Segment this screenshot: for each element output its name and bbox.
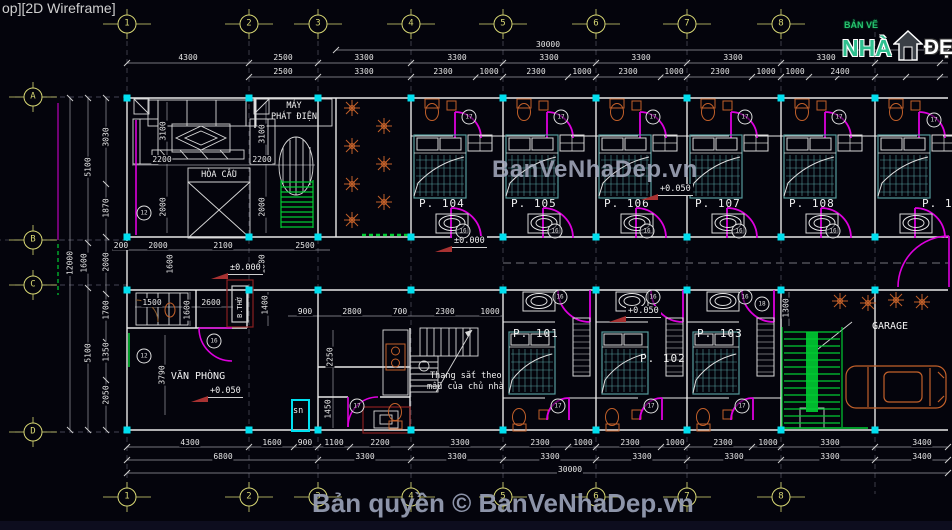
dim-label: 1100	[323, 438, 344, 447]
door-tag: 16	[646, 290, 661, 305]
door-tag: 16	[553, 290, 568, 305]
dim-label: 2400	[829, 67, 850, 76]
door-tag: 17	[646, 110, 661, 125]
dim-label: 2300	[434, 307, 455, 316]
dim-label: 4300	[177, 53, 198, 62]
dim-label: 900	[297, 307, 313, 316]
dim-label: 2500	[272, 67, 293, 76]
dim-label: 900	[297, 438, 313, 447]
dim-label: 2300	[525, 67, 546, 76]
room-label: P. 108	[789, 197, 835, 210]
dim-label: 1350	[102, 341, 111, 362]
dimension-ticks	[67, 47, 951, 476]
dim-label: 2000	[159, 196, 168, 217]
dim-label: 200	[113, 241, 129, 250]
level-marker-arrow	[191, 396, 208, 402]
door-tag: 17	[644, 399, 659, 414]
dim-label: 1400	[261, 294, 270, 315]
floorplan-drawing	[0, 0, 952, 530]
door-tag: 16	[738, 290, 753, 305]
dim-label: 1300	[782, 297, 791, 318]
grid-bubble-crosshairs	[9, 9, 805, 512]
room-label: P. 101	[513, 327, 559, 340]
area-label: VĂN PHÒNG	[171, 371, 225, 382]
dim-label: 3400	[911, 452, 932, 461]
door-tag: 17	[462, 110, 477, 125]
level-marker-arrow	[435, 246, 452, 252]
level-marker-arrow	[641, 194, 658, 200]
dim-label: 2200	[151, 155, 172, 164]
grid-bubble-row-B: B	[24, 231, 43, 250]
stair-note-line1: Thang sắt theo	[430, 371, 502, 381]
dim-label: 1000	[757, 438, 778, 447]
door-tag: 16	[456, 224, 471, 239]
sanitary-fixtures	[136, 300, 405, 429]
dim-label: 3300	[722, 53, 743, 62]
banvenhadep-logo: BẢN VẼ NHÀ ĐẸP	[842, 4, 952, 68]
door-tag: 16	[826, 224, 841, 239]
dim-label: 3300	[539, 452, 560, 461]
dim-label: 2500	[294, 241, 315, 250]
dim-label: 3300	[815, 53, 836, 62]
dim-label: 3100	[159, 120, 168, 141]
dim-label: 5100	[84, 156, 93, 177]
grid-bubble-top-8: 8	[772, 15, 791, 34]
dim-label: 1450	[324, 398, 333, 419]
grid-bubble-top-5: 5	[494, 15, 513, 34]
house-icon	[893, 30, 923, 66]
level-marker: +0.050	[626, 306, 661, 318]
dim-label: 1000	[478, 67, 499, 76]
dim-label: 2300	[529, 438, 550, 447]
dim-label: 2000	[147, 241, 168, 250]
door-tag: 17	[832, 110, 847, 125]
dim-label: 3300	[631, 452, 652, 461]
dim-label: 3030	[102, 126, 111, 147]
dim-label: 1600	[166, 253, 175, 274]
dim-label: 1000	[663, 67, 684, 76]
dim-label: 1700	[102, 299, 111, 320]
dim-label: 2300	[619, 438, 640, 447]
grid-bubble-top-3: 3	[309, 15, 328, 34]
grid-bubble-bottom-1: 1	[118, 488, 137, 507]
dim-label: 3300	[819, 438, 840, 447]
sn-label: sn	[293, 406, 303, 416]
dim-label: 2300	[709, 67, 730, 76]
grid-bubble-row-C: C	[24, 276, 43, 295]
door-tag: 16	[640, 224, 655, 239]
room-label: P. 109	[922, 197, 952, 210]
grid-bubble-top-2: 2	[240, 15, 259, 34]
dim-label: 3300	[723, 452, 744, 461]
cad-canvas[interactable]: op][2D Wireframe]	[0, 0, 952, 530]
bottom-strip	[0, 521, 952, 530]
dim-label: 3300	[353, 67, 374, 76]
logo-brand: NHÀ	[842, 35, 892, 62]
door-tag: 17	[738, 110, 753, 125]
room-label: P. 107	[695, 197, 741, 210]
dim-label: 1000	[479, 307, 500, 316]
dim-label: 30000	[557, 465, 583, 474]
dim-label: 700	[392, 307, 408, 316]
dim-label: 3300	[353, 53, 374, 62]
logo-prefix: BẢN VẼ	[844, 20, 878, 30]
dim-label: 1000	[755, 67, 776, 76]
dim-label: 2000	[102, 251, 111, 272]
dim-label: 2200	[369, 438, 390, 447]
door-tag: 17	[927, 113, 942, 128]
door-tag: 17	[551, 399, 566, 414]
door-tag: 17	[554, 110, 569, 125]
door-tag: 12	[137, 206, 152, 221]
dim-label: 2000	[258, 196, 267, 217]
copyright-watermark: Bản quyền © BanVeNhaDep.vn	[312, 488, 694, 519]
door-tag: 12	[137, 349, 152, 364]
dim-label: 4300	[179, 438, 200, 447]
grid-bubble-bottom-2: 2	[240, 488, 259, 507]
viewport-mode-label: op][2D Wireframe]	[2, 0, 116, 16]
dim-label: 12000	[66, 250, 75, 276]
dim-label: 1600	[183, 299, 192, 320]
dim-label: 3300	[446, 452, 467, 461]
dim-label: 1600	[80, 252, 89, 273]
door-tag: 17	[350, 399, 365, 414]
dim-label: 1500	[141, 298, 162, 307]
dim-label: 2600	[200, 298, 221, 307]
dim-label: 3300	[538, 53, 559, 62]
level-marker: ±0.000	[228, 263, 263, 275]
dim-label: 1000	[664, 438, 685, 447]
area-label: GARAGE	[872, 321, 908, 332]
level-marker-arrow	[609, 316, 626, 322]
stair-note-line2: mẫu của chủ nhà	[427, 382, 504, 392]
dim-label: 2300	[432, 67, 453, 76]
grid-bubble-top-1: 1	[118, 15, 137, 34]
dim-label: 3300	[446, 53, 467, 62]
area-label: PHÁT ĐIỆN	[271, 112, 317, 122]
dim-label: 3300	[449, 438, 470, 447]
car-icon	[846, 366, 946, 408]
dim-label: 1870	[102, 197, 111, 218]
dim-label: 3300	[819, 452, 840, 461]
dim-label: 6800	[212, 452, 233, 461]
dim-label: 1600	[261, 438, 282, 447]
dim-label: 2300	[712, 438, 733, 447]
room-label: P. 102	[640, 352, 686, 365]
dim-label: 2050	[102, 384, 111, 405]
grid-bubble-row-A: A	[24, 88, 43, 107]
dim-label: 3790	[158, 364, 167, 385]
dim-label: 2250	[326, 346, 335, 367]
door-tag: 16	[732, 224, 747, 239]
dim-label: 2300	[617, 67, 638, 76]
grid-bubble-top-7: 7	[678, 15, 697, 34]
room-label: P. 105	[511, 197, 557, 210]
level-marker: ±0.000	[452, 236, 487, 248]
dim-label: 2200	[251, 155, 272, 164]
dim-label: 1000	[571, 67, 592, 76]
room-label: P. 103	[697, 327, 743, 340]
level-marker: +0.050	[208, 386, 243, 398]
door-tag: 17	[735, 399, 750, 414]
area-label: HÒA CẦU	[201, 170, 237, 180]
dim-label: 1000	[784, 67, 805, 76]
grid-bubble-row-D: D	[24, 423, 43, 442]
dim-label: 2500	[272, 53, 293, 62]
dim-label: 3100	[258, 123, 267, 144]
altar-label: B.THỜ	[236, 297, 244, 318]
door-tag: 16	[548, 224, 563, 239]
grid-bubble-top-6: 6	[587, 15, 606, 34]
logo-suffix: ĐẸP	[924, 36, 952, 60]
room-label: P. 104	[419, 197, 465, 210]
area-label: MÁY	[286, 101, 301, 111]
dim-label: 3400	[911, 438, 932, 447]
dim-label: 3300	[354, 452, 375, 461]
dim-label: 3300	[630, 53, 651, 62]
level-marker-arrow	[211, 273, 228, 279]
dim-label: 5100	[84, 342, 93, 363]
dim-label: 30000	[535, 40, 561, 49]
center-watermark: BanVeNhaDep.vn	[492, 156, 698, 184]
dim-label: 2800	[341, 307, 362, 316]
grid-bubble-bottom-8: 8	[772, 488, 791, 507]
level-marker: +0.050	[658, 184, 693, 196]
door-tag: 16	[207, 334, 222, 349]
door-tag: 18	[755, 297, 770, 312]
grid-bubble-top-4: 4	[402, 15, 421, 34]
dim-label: 2100	[212, 241, 233, 250]
dim-label: 1000	[572, 438, 593, 447]
